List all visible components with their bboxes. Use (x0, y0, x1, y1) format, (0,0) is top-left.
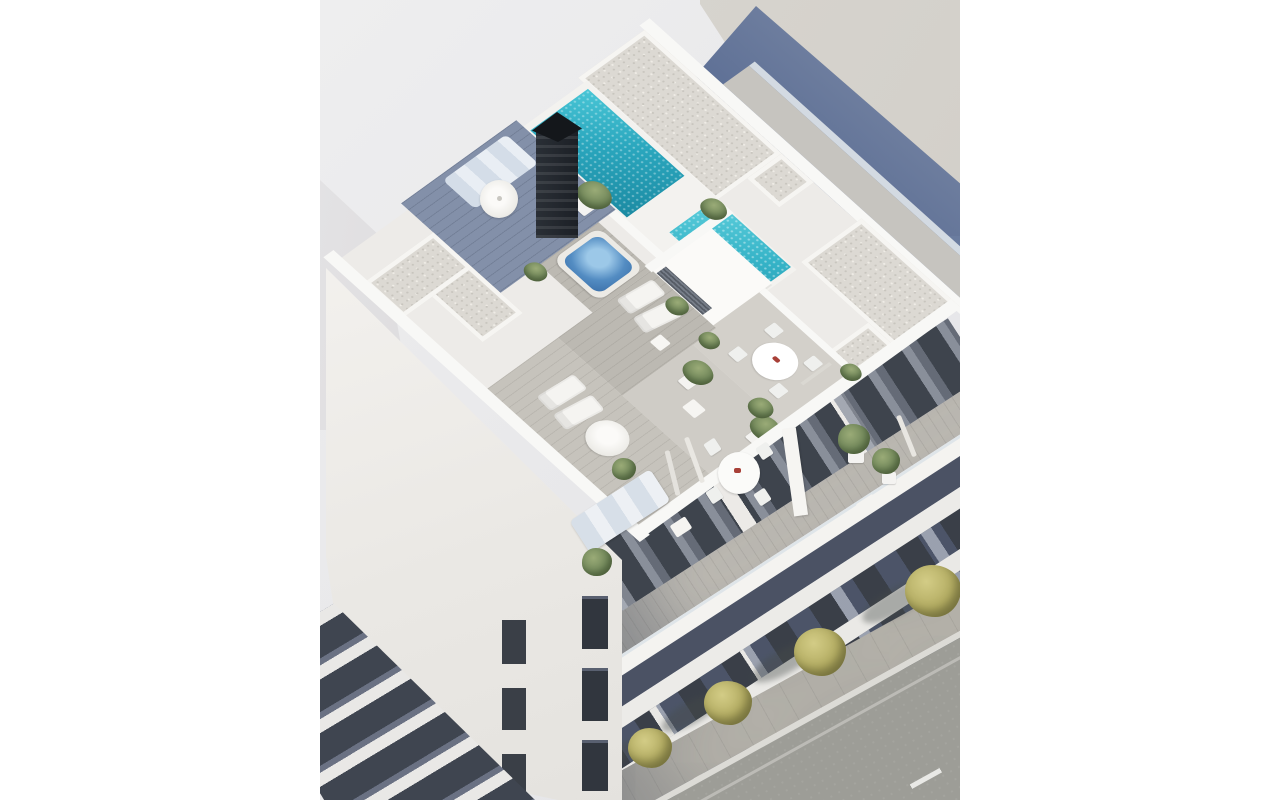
table-decor (734, 468, 741, 473)
render-canvas (320, 0, 960, 800)
balcony-plant (872, 448, 900, 474)
street-tree (905, 565, 960, 617)
street-tree (704, 681, 752, 725)
terrace-plant (582, 548, 612, 576)
street-tree (794, 628, 846, 676)
parasol-tip (497, 196, 502, 201)
facade-window (502, 620, 526, 664)
facade-window (582, 740, 608, 791)
facade-window (582, 596, 608, 649)
facade-window (582, 668, 608, 721)
architectural-render: High-angle aerial 3D architectural rende… (0, 0, 1280, 800)
chimney (536, 128, 578, 238)
street-tree (628, 728, 672, 768)
facade-window (502, 688, 526, 730)
balcony-plant (838, 424, 870, 454)
terrace-plant (612, 458, 636, 480)
penthouse-table (718, 452, 760, 494)
